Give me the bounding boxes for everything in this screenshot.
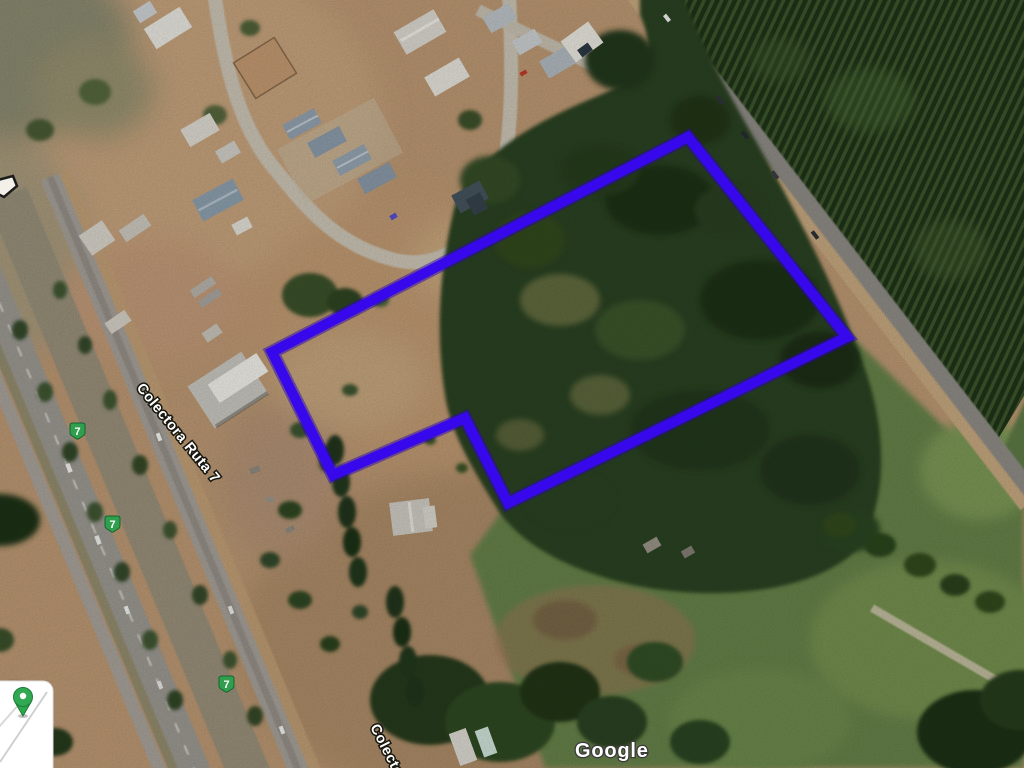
google-watermark[interactable]: Google	[575, 740, 649, 762]
route-shield-3: 7	[219, 676, 234, 692]
satellite-map-view[interactable]: Colectora Ruta 7 Colectora 7 7 7 Google	[0, 0, 1024, 768]
svg-text:7: 7	[109, 519, 115, 531]
svg-text:7: 7	[74, 426, 80, 438]
photo-grain	[0, 0, 1024, 768]
route-shield-2: 7	[105, 516, 120, 532]
route-shield-1: 7	[70, 423, 85, 439]
svg-text:7: 7	[223, 679, 229, 691]
